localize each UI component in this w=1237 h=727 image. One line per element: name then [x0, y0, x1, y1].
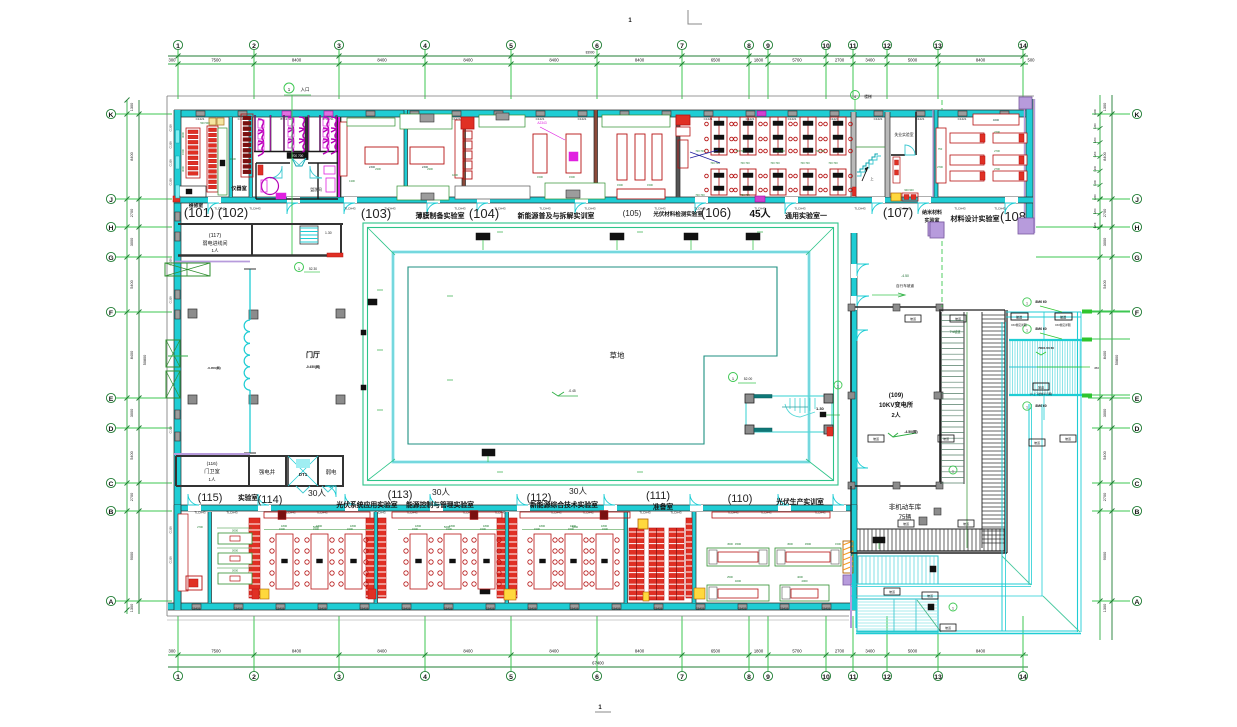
svg-text:C1421: C1421 [234, 607, 243, 611]
svg-text:1800: 1800 [754, 58, 764, 63]
svg-text:TLCH43: TLCH43 [539, 207, 551, 211]
svg-text:3400: 3400 [865, 58, 875, 63]
svg-text:1800: 1800 [350, 524, 357, 528]
svg-text:9: 9 [766, 674, 770, 681]
svg-text:1: 1 [176, 674, 180, 681]
svg-text:C1421: C1421 [958, 117, 967, 121]
svg-text:30人: 30人 [432, 487, 450, 497]
svg-text:5: 5 [509, 43, 513, 50]
svg-text:C1421: C1421 [196, 117, 205, 121]
svg-text:A: A [1135, 599, 1140, 606]
svg-text:8400: 8400 [130, 351, 134, 359]
svg-text:4000: 4000 [735, 579, 742, 583]
svg-text:7500: 7500 [211, 649, 221, 654]
svg-text:8M6 60: 8M6 60 [1035, 327, 1046, 331]
svg-text:DT1: DT1 [299, 472, 308, 477]
svg-text:(106): (106) [701, 205, 731, 220]
svg-text:1: 1 [1026, 406, 1028, 410]
svg-text:(105): (105) [623, 209, 642, 218]
svg-text:500: 500 [1028, 58, 1036, 63]
svg-text:8400: 8400 [635, 649, 645, 654]
svg-text:9000: 9000 [130, 552, 134, 560]
svg-text:1: 1 [952, 607, 954, 611]
svg-text:G: G [1134, 255, 1139, 262]
svg-text:C: C [1135, 481, 1140, 488]
svg-text:2700: 2700 [1103, 209, 1107, 217]
svg-text:K: K [109, 112, 114, 119]
svg-text:300: 300 [169, 58, 177, 63]
svg-text:C1338: C1338 [170, 526, 173, 534]
svg-text:1800: 1800 [316, 524, 323, 528]
svg-text:盥洗间: 盥洗间 [310, 187, 322, 192]
svg-text:1: 1 [1026, 302, 1028, 306]
svg-text:C1421: C1421 [578, 117, 587, 121]
svg-text:TLCH43: TLCH43 [814, 511, 826, 515]
svg-text:10: 10 [822, 674, 830, 681]
svg-text:2: 2 [252, 43, 256, 50]
svg-text:1: 1 [1026, 329, 1028, 333]
svg-text:TLCH43: TLCH43 [582, 511, 594, 515]
svg-text:TLCH43: TLCH43 [854, 207, 866, 211]
svg-text:7: 7 [680, 43, 684, 50]
svg-text:6: 6 [595, 43, 599, 50]
svg-text:TLCH43: TLCH43 [550, 511, 562, 515]
svg-text:C1421: C1421 [612, 607, 621, 611]
svg-text:(115): (115) [198, 492, 223, 504]
svg-text:8400: 8400 [130, 152, 134, 160]
svg-text:5400: 5400 [1103, 451, 1107, 459]
svg-text:3400: 3400 [865, 649, 875, 654]
svg-text:1: 1 [176, 43, 180, 50]
svg-text:TLCH43: TLCH43 [249, 207, 261, 211]
svg-text:TLCH43: TLCH43 [454, 207, 466, 211]
svg-text:C1338: C1338 [170, 426, 173, 434]
svg-text:C1421: C1421 [192, 607, 201, 611]
svg-text:(117): (117) [209, 233, 222, 239]
svg-text:4: 4 [423, 43, 427, 50]
svg-text:G: G [108, 255, 113, 262]
svg-text:B: B [109, 509, 114, 516]
svg-text:4: 4 [423, 674, 427, 681]
svg-text:TLCH43: TLCH43 [727, 511, 739, 515]
svg-text:C1421: C1421 [360, 607, 369, 611]
svg-text:13: 13 [934, 674, 942, 681]
svg-text:9000: 9000 [1103, 552, 1107, 560]
svg-text:5000: 5000 [908, 58, 918, 63]
svg-text:8400: 8400 [635, 58, 645, 63]
svg-text:8400: 8400 [377, 58, 387, 63]
svg-text:A: A [109, 599, 114, 606]
svg-text:C1338: C1338 [170, 178, 173, 186]
svg-text:C1338: C1338 [170, 296, 173, 304]
svg-text:5700: 5700 [792, 649, 802, 654]
svg-text:8400: 8400 [549, 58, 559, 63]
svg-text:8400: 8400 [549, 649, 559, 654]
svg-text:1300: 1300 [130, 103, 134, 111]
svg-text:-0.45: -0.45 [568, 389, 575, 393]
svg-text:6: 6 [595, 674, 599, 681]
svg-text:3: 3 [337, 43, 341, 50]
svg-text:C1421: C1421 [276, 607, 285, 611]
svg-text:F: F [109, 310, 113, 317]
svg-text:(111): (111) [646, 490, 670, 502]
svg-text:13: 13 [934, 43, 942, 50]
svg-text:TLCH43: TLCH43 [194, 511, 206, 515]
svg-text:3000: 3000 [232, 529, 239, 533]
svg-text:8: 8 [747, 674, 751, 681]
svg-text:1800: 1800 [483, 524, 490, 528]
svg-text:52.00: 52.00 [744, 377, 753, 381]
svg-text:C1421: C1421 [570, 607, 579, 611]
svg-text:2700: 2700 [130, 493, 134, 501]
svg-text:5400: 5400 [1103, 280, 1107, 288]
svg-text:C1421: C1421 [486, 607, 495, 611]
svg-text:1800: 1800 [539, 524, 546, 528]
svg-text:坡道: 坡道 [1016, 315, 1023, 320]
svg-text:8400: 8400 [377, 649, 387, 654]
svg-text:3000: 3000 [232, 549, 239, 553]
svg-text:TLCH43: TLCH43 [954, 207, 966, 211]
svg-text:700/1.50 60: 700/1.50 60 [1038, 346, 1054, 350]
svg-text:-4.50: -4.50 [901, 274, 909, 278]
svg-text:C1421: C1421 [402, 607, 411, 611]
svg-text:DN梯见详图: DN梯见详图 [1011, 323, 1026, 327]
svg-text:TLCH43: TLCH43 [494, 511, 506, 515]
svg-text:TLCH43: TLCH43 [344, 207, 356, 211]
svg-text:1300: 1300 [130, 604, 134, 612]
svg-text:52.30: 52.30 [309, 267, 317, 271]
svg-text:2700: 2700 [130, 209, 134, 217]
svg-text:4500: 4500 [805, 542, 812, 546]
svg-text:8400: 8400 [292, 58, 302, 63]
svg-text:C1338: C1338 [170, 556, 173, 564]
svg-text:(110): (110) [728, 493, 753, 505]
svg-text:4500: 4500 [735, 542, 742, 546]
svg-text:5000: 5000 [908, 649, 918, 654]
svg-text:1800: 1800 [449, 524, 456, 528]
svg-text:B: B [1135, 509, 1140, 516]
svg-text:(103): (103) [361, 206, 391, 221]
svg-text:7500: 7500 [211, 58, 221, 63]
svg-text:E: E [109, 396, 114, 403]
svg-text:TLCH43: TLCH43 [316, 511, 328, 515]
svg-text:C1421: C1421 [822, 607, 831, 611]
svg-text:3000: 3000 [130, 409, 134, 417]
svg-text:-4.50(网): -4.50(网) [904, 429, 917, 434]
svg-text:5400: 5400 [130, 451, 134, 459]
svg-text:自行车坡道: 自行车坡道 [896, 283, 914, 288]
svg-text:67400: 67400 [592, 661, 604, 666]
svg-text:C1421: C1421 [746, 117, 755, 121]
svg-text:1: 1 [837, 385, 839, 389]
svg-text:1300: 1300 [1103, 103, 1107, 111]
svg-text:8M6 60: 8M6 60 [1035, 404, 1046, 408]
svg-text:11: 11 [849, 43, 856, 50]
svg-text:TLCH43: TLCH43 [760, 511, 772, 515]
svg-text:3000: 3000 [1103, 409, 1107, 417]
svg-text:C1421: C1421 [788, 117, 797, 121]
svg-text:TLCH43: TLCH43 [794, 207, 806, 211]
svg-text:4000: 4000 [801, 579, 808, 583]
svg-text:失业实验室: 失业实验室 [895, 132, 914, 137]
svg-text:A2343: A2343 [537, 121, 546, 125]
svg-text:4600: 4600 [993, 118, 1000, 122]
svg-text:8400: 8400 [1103, 351, 1107, 359]
svg-text:C1338: C1338 [170, 124, 173, 132]
svg-text:C1338: C1338 [170, 159, 173, 167]
svg-text:D: D [1135, 426, 1140, 433]
svg-text:2300: 2300 [369, 165, 376, 169]
svg-text:(107): (107) [883, 205, 913, 220]
svg-text:F: F [1135, 310, 1139, 317]
svg-text:TLCH43: TLCH43 [639, 511, 651, 515]
svg-text:E: E [1135, 396, 1140, 403]
svg-text:2700: 2700 [835, 58, 845, 63]
svg-text:8: 8 [747, 43, 751, 50]
svg-text:C1421: C1421 [780, 607, 789, 611]
svg-text:14: 14 [1019, 674, 1027, 681]
svg-text:C1421: C1421 [916, 117, 925, 121]
svg-text:TLCH43: TLCH43 [670, 511, 682, 515]
svg-text:3000: 3000 [1103, 238, 1107, 246]
svg-text:12: 12 [883, 674, 891, 681]
svg-text:(104): (104) [469, 206, 499, 221]
svg-text:TLCH43: TLCH43 [406, 511, 418, 515]
svg-text:(116): (116) [207, 461, 218, 467]
svg-text:30人: 30人 [569, 486, 587, 496]
svg-text:J: J [109, 197, 113, 204]
svg-text:C1421: C1421 [696, 607, 705, 611]
svg-text:J: J [1135, 197, 1139, 204]
svg-text:C1421: C1421 [830, 117, 839, 121]
svg-text:1800: 1800 [570, 524, 577, 528]
svg-text:(113): (113) [388, 489, 413, 501]
svg-text:1: 1 [952, 470, 954, 474]
svg-text:300: 300 [169, 649, 177, 654]
svg-text:TLCH43: TLCH43 [654, 207, 666, 211]
svg-text:D: D [109, 426, 114, 433]
svg-text:2700: 2700 [835, 649, 845, 654]
svg-text:纳米材料: 纳米材料 [922, 209, 942, 216]
svg-text:8M6 60: 8M6 60 [1035, 300, 1046, 304]
svg-text:C1421: C1421 [528, 607, 537, 611]
svg-text:1人: 1人 [211, 248, 219, 253]
svg-text:30人: 30人 [308, 488, 326, 498]
svg-text:C1421: C1421 [318, 607, 327, 611]
svg-text:C1421: C1421 [874, 117, 883, 121]
svg-text:83900: 83900 [586, 51, 595, 55]
svg-text:50800: 50800 [143, 355, 147, 366]
svg-text:H: H [109, 225, 114, 232]
svg-text:(109): (109) [889, 392, 903, 399]
svg-text:2700: 2700 [1103, 493, 1107, 501]
svg-text:6500: 6500 [711, 649, 721, 654]
svg-text:C1338: C1338 [170, 141, 173, 149]
svg-text:8400: 8400 [1103, 152, 1107, 160]
svg-text:12: 12 [883, 43, 891, 50]
svg-text:(114): (114) [258, 494, 283, 506]
svg-text:9: 9 [766, 43, 770, 50]
svg-text:C: C [109, 481, 114, 488]
svg-text:1800: 1800 [281, 524, 288, 528]
svg-text:8400: 8400 [463, 58, 473, 63]
svg-text:11: 11 [849, 674, 856, 681]
svg-text:C1421: C1421 [536, 117, 545, 121]
svg-text:5700: 5700 [792, 58, 802, 63]
svg-text:1800: 1800 [601, 524, 608, 528]
svg-text:1.30: 1.30 [816, 406, 825, 411]
svg-text:8400: 8400 [976, 58, 986, 63]
svg-text:14: 14 [1019, 43, 1027, 50]
svg-text:K: K [1135, 112, 1140, 119]
svg-text:草地: 草地 [610, 350, 625, 360]
svg-text:8400: 8400 [463, 649, 473, 654]
svg-text:TLCH43: TLCH43 [226, 511, 238, 515]
svg-text:DN梯见详图: DN梯见详图 [1055, 323, 1070, 327]
svg-text:8400: 8400 [976, 649, 986, 654]
svg-text:5400: 5400 [130, 280, 134, 288]
svg-text:7%坡道: 7%坡道 [950, 329, 962, 334]
svg-text:-0.450(网): -0.450(网) [306, 364, 320, 369]
svg-text:1300: 1300 [1103, 604, 1107, 612]
svg-text:8400: 8400 [292, 649, 302, 654]
svg-text:1800: 1800 [754, 649, 764, 654]
svg-text:10KV变电所: 10KV变电所 [879, 401, 914, 409]
svg-text:1.30: 1.30 [325, 231, 332, 235]
svg-text:C1421: C1421 [444, 607, 453, 611]
svg-text:TLCH43: TLCH43 [584, 207, 596, 211]
svg-text:H: H [1135, 225, 1140, 232]
svg-text:7: 7 [680, 674, 684, 681]
svg-text:6500: 6500 [711, 58, 721, 63]
svg-text:C1421: C1421 [654, 607, 663, 611]
svg-text:3: 3 [337, 674, 341, 681]
svg-text:5: 5 [509, 674, 513, 681]
svg-text:45人: 45人 [749, 207, 771, 220]
svg-text:3000: 3000 [232, 569, 239, 573]
svg-text:450: 450 [1094, 366, 1099, 370]
svg-text:10: 10 [822, 43, 830, 50]
svg-text:3000: 3000 [130, 238, 134, 246]
svg-text:(101) (102): (101) (102) [184, 205, 248, 220]
svg-text:50800: 50800 [1115, 355, 1119, 366]
svg-text:2: 2 [252, 674, 256, 681]
svg-text:弱电进线间: 弱电进线间 [202, 240, 227, 247]
svg-text:楼梯: 楼梯 [864, 94, 872, 99]
svg-text:坡道: 坡道 [1060, 315, 1067, 320]
svg-text:1800: 1800 [415, 524, 422, 528]
svg-text:C1421: C1421 [738, 607, 747, 611]
svg-text:700 700: 700 700 [292, 154, 304, 158]
svg-text:1人: 1人 [208, 477, 216, 482]
